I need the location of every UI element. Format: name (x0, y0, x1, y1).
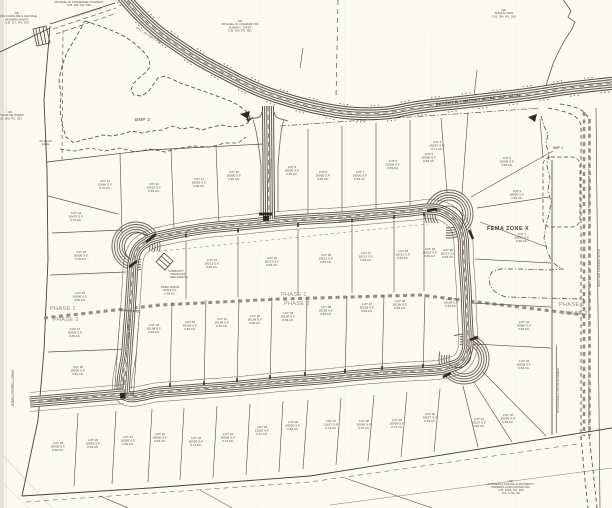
svg-text:BMP 1: BMP 1 (553, 146, 563, 150)
svg-text:PHASE 2: PHASE 2 (562, 311, 588, 317)
svg-text:PHASE 1: PHASE 1 (559, 302, 585, 308)
svg-text:PHASE 2: PHASE 2 (53, 317, 79, 323)
svg-text:PHASE 2: PHASE 2 (284, 301, 310, 307)
svg-text:(SEE SHEET 9): (SEE SHEET 9) (170, 275, 189, 279)
svg-text:BMP 2: BMP 2 (135, 117, 150, 122)
svg-text:PHASE 1: PHASE 1 (50, 306, 76, 312)
svg-text:JONES-FERRELL DRIVE: JONES-FERRELL DRIVE (11, 370, 15, 407)
svg-text:PANTHER LANDING DITCH: PANTHER LANDING DITCH (597, 249, 601, 287)
svg-text:60' DRAINAGE & UTILITY EASEMEN: 60' DRAINAGE & UTILITY EASEMENT (556, 367, 560, 413)
svg-text:AIMEE CIRCLE: AIMEE CIRCLE (268, 159, 273, 182)
svg-text:FEMA ZONE X: FEMA ZONE X (487, 226, 529, 232)
svg-text:EASE.: EASE. (42, 142, 50, 146)
svg-text:PHASE 1: PHASE 1 (281, 292, 307, 298)
